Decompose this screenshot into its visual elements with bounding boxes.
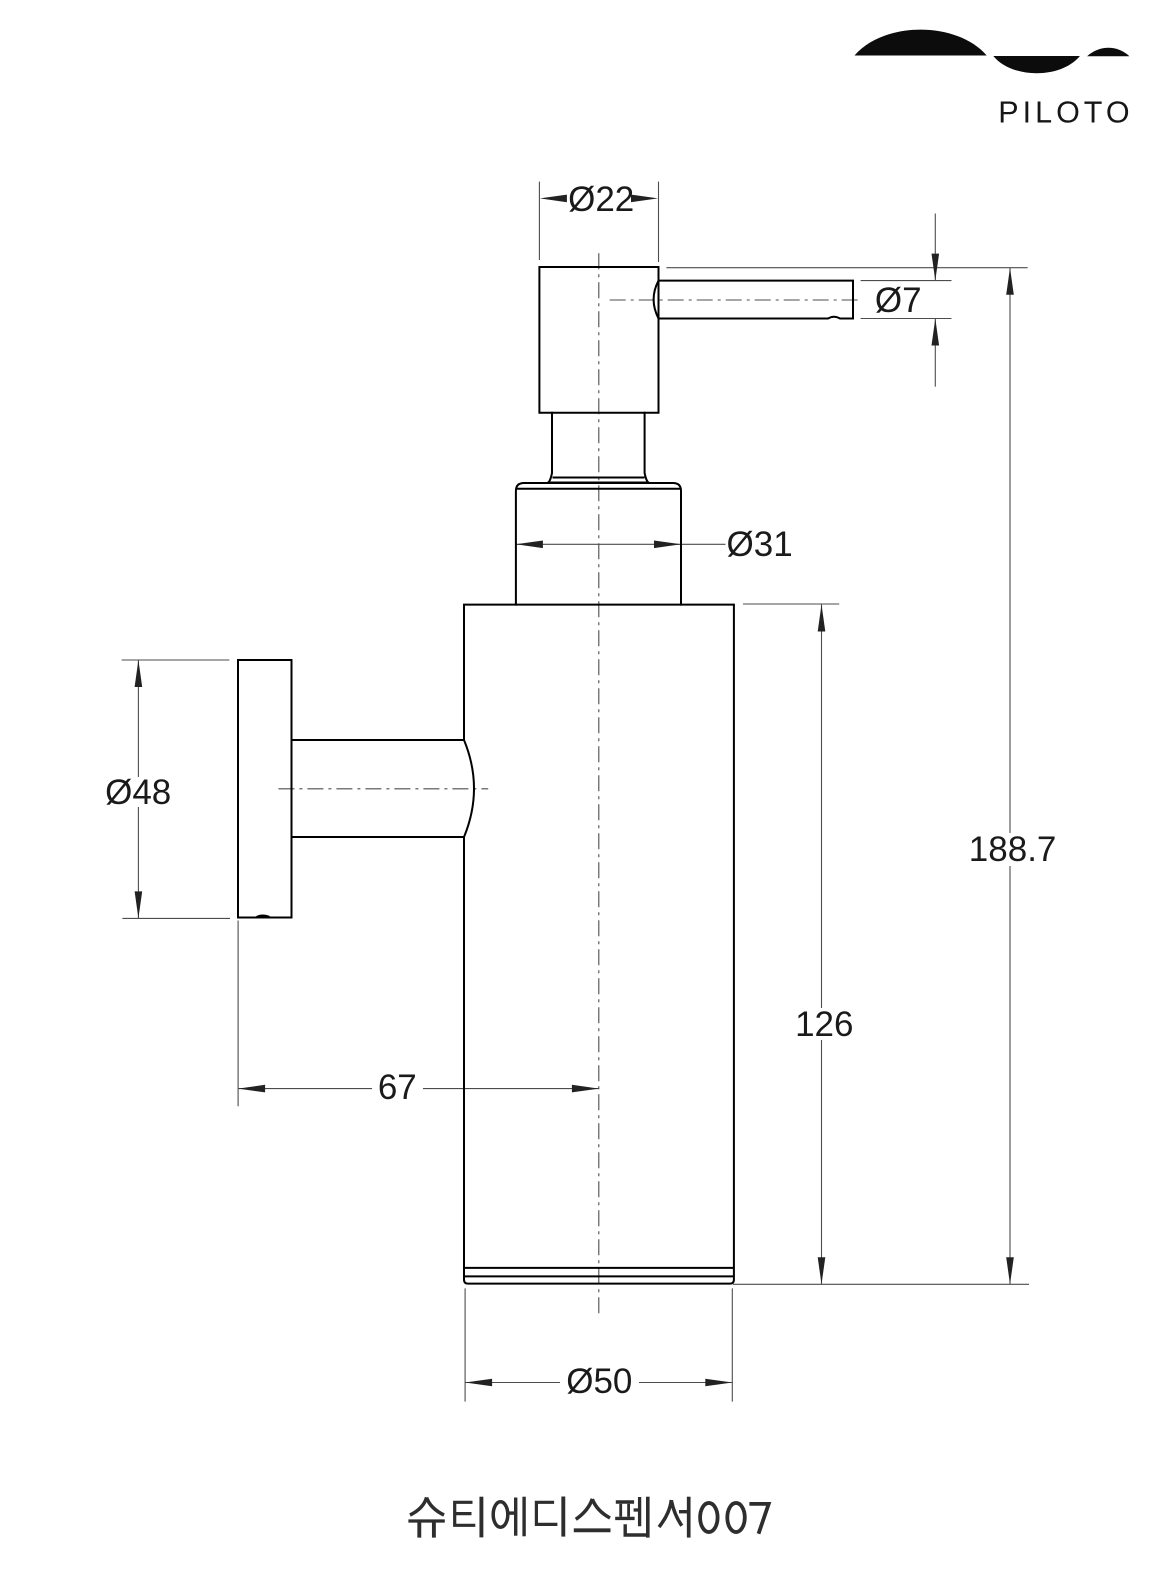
svg-text:Ø50: Ø50 (566, 1362, 632, 1401)
svg-text:67: 67 (378, 1068, 417, 1107)
svg-text:188.7: 188.7 (969, 830, 1057, 869)
svg-text:Ø31: Ø31 (727, 525, 793, 564)
svg-text:PILOTO: PILOTO (998, 96, 1133, 130)
svg-text:Ø22: Ø22 (568, 180, 634, 219)
svg-text:126: 126 (795, 1005, 853, 1044)
svg-text:Ø48: Ø48 (105, 773, 171, 812)
svg-text:Ø7: Ø7 (875, 281, 922, 320)
